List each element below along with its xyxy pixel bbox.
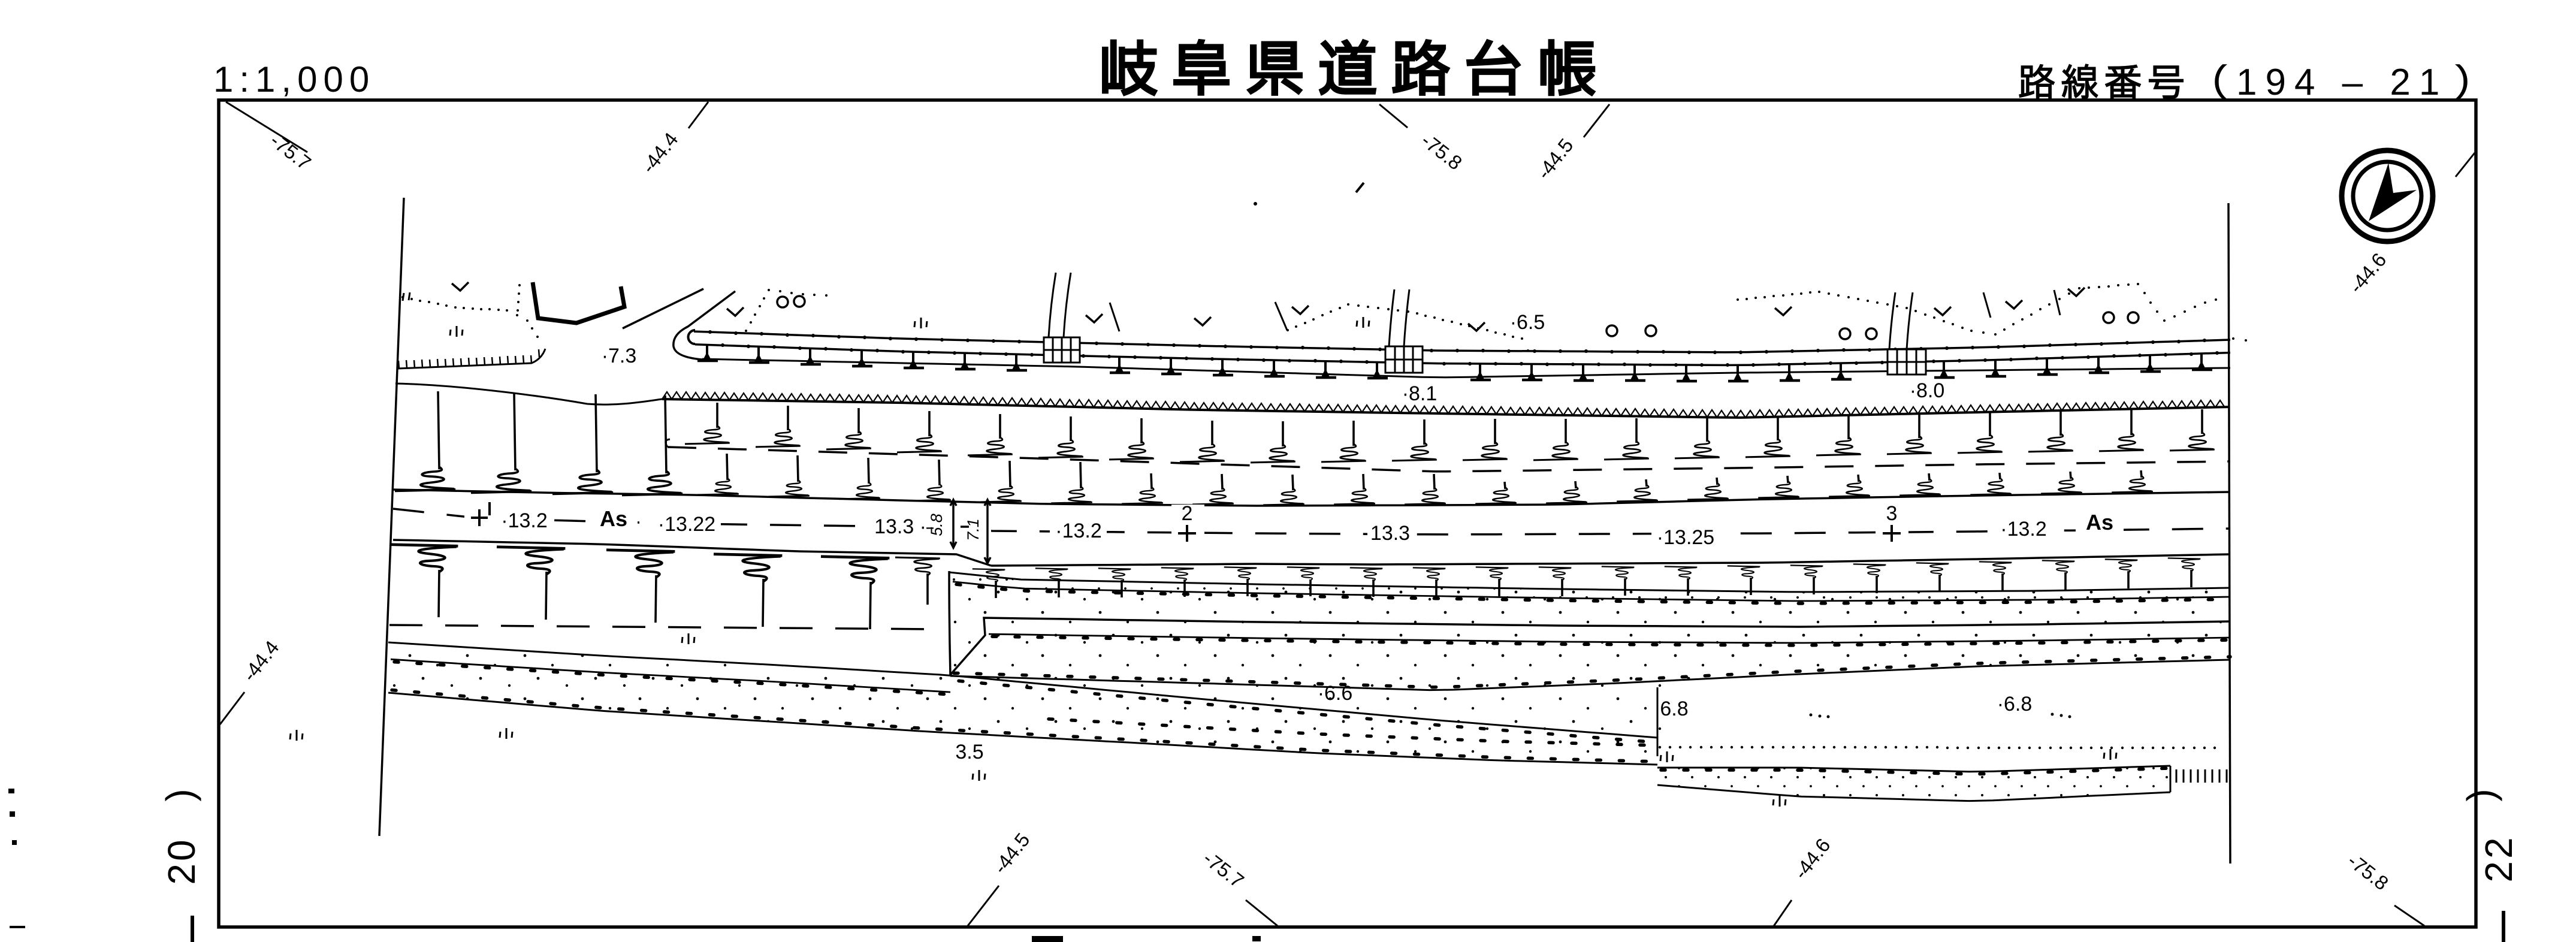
- svg-text:-44.4: -44.4: [637, 128, 682, 177]
- svg-text:·13.2: ·13.2: [501, 509, 548, 532]
- svg-text:-44.4: -44.4: [238, 636, 283, 686]
- svg-text:-44.5: -44.5: [989, 829, 1034, 878]
- svg-text:·6.8: ·6.8: [1997, 693, 2033, 715]
- svg-text:): ): [2459, 789, 2502, 801]
- svg-text:6.8: 6.8: [1660, 698, 1688, 720]
- svg-text:·8.0: ·8.0: [1910, 379, 1945, 402]
- svg-text:·8.1: ·8.1: [1402, 382, 1438, 405]
- svg-text:·7.3: ·7.3: [602, 345, 637, 367]
- svg-text:22: 22: [2477, 835, 2520, 882]
- svg-text:-44.5: -44.5: [1532, 134, 1577, 183]
- svg-text:-75.8: -75.8: [1417, 129, 1466, 174]
- svg-text:-75.7: -75.7: [266, 129, 315, 174]
- svg-text:As: As: [600, 506, 627, 531]
- svg-text:·13.22: ·13.22: [658, 513, 715, 536]
- svg-text:-44.6: -44.6: [1789, 834, 1834, 883]
- svg-text:·13.2: ·13.2: [1055, 520, 1102, 542]
- svg-text:3.5: 3.5: [955, 741, 983, 763]
- svg-text:·13.25: ·13.25: [1657, 526, 1714, 549]
- svg-text:·6.5: ·6.5: [1510, 311, 1545, 334]
- svg-text:-75.7: -75.7: [1199, 847, 1248, 892]
- svg-text:·13.2: ·13.2: [2000, 518, 2047, 541]
- svg-text:13.3: 13.3: [1370, 522, 1410, 545]
- svg-text:2: 2: [1182, 502, 1193, 525]
- svg-text:194 – 21: 194 – 21: [2236, 62, 2448, 103]
- svg-text:3: 3: [1886, 502, 1898, 525]
- svg-text:1:1,000: 1:1,000: [213, 59, 375, 99]
- svg-text:As: As: [2086, 510, 2113, 535]
- svg-text:20: 20: [160, 837, 203, 884]
- svg-text:5.8: 5.8: [928, 514, 946, 536]
- svg-text:): ): [158, 789, 201, 801]
- svg-text:7.1: 7.1: [964, 518, 982, 541]
- svg-text:-75.8: -75.8: [2344, 849, 2393, 894]
- svg-text:·6.6: ·6.6: [1318, 682, 1353, 705]
- svg-text:-44.6: -44.6: [2345, 249, 2391, 297]
